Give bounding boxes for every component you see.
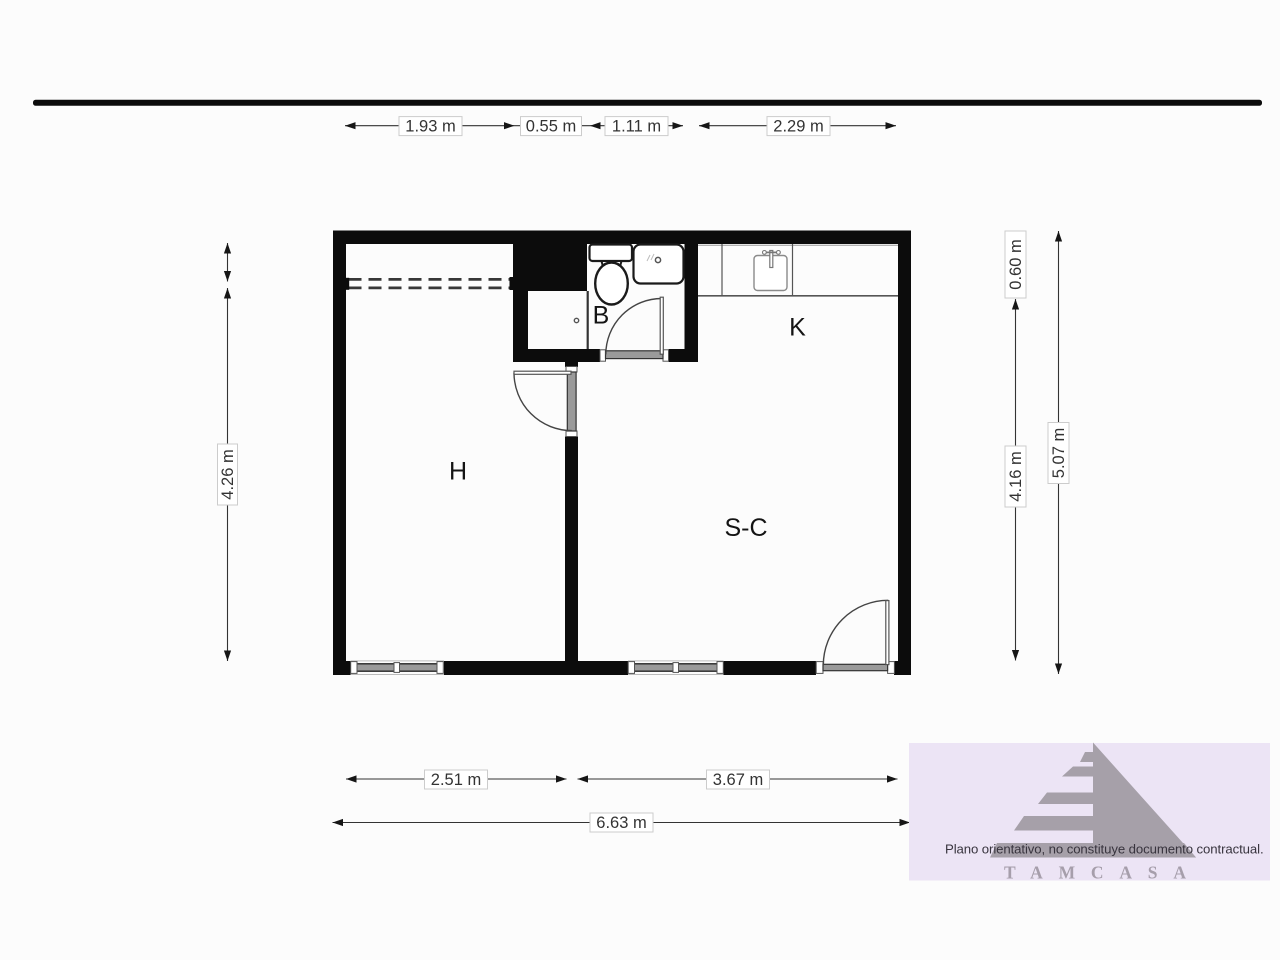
svg-text:4.16 m: 4.16 m <box>1007 451 1025 501</box>
svg-text:0.60 m: 0.60 m <box>1007 239 1025 289</box>
svg-text:1.93 m: 1.93 m <box>405 118 455 136</box>
svg-text:1.11 m: 1.11 m <box>612 118 661 136</box>
svg-text:4.26 m: 4.26 m <box>219 449 237 499</box>
svg-text:0.55 m: 0.55 m <box>526 118 576 136</box>
svg-text:5.07 m: 5.07 m <box>1050 428 1068 478</box>
svg-text:2.51 m: 2.51 m <box>431 771 481 789</box>
svg-text:K: K <box>789 314 806 342</box>
svg-text:B: B <box>593 301 610 329</box>
svg-text:6.63 m: 6.63 m <box>596 814 646 832</box>
svg-text:Plano orientativo, no constitu: Plano orientativo, no constituye documen… <box>945 842 1264 857</box>
svg-text:TAMCASA: TAMCASA <box>1004 863 1202 883</box>
svg-text:2.29 m: 2.29 m <box>773 118 823 136</box>
svg-text:H: H <box>449 457 467 485</box>
svg-text:S-C: S-C <box>724 514 767 542</box>
svg-text:3.67 m: 3.67 m <box>713 771 763 789</box>
